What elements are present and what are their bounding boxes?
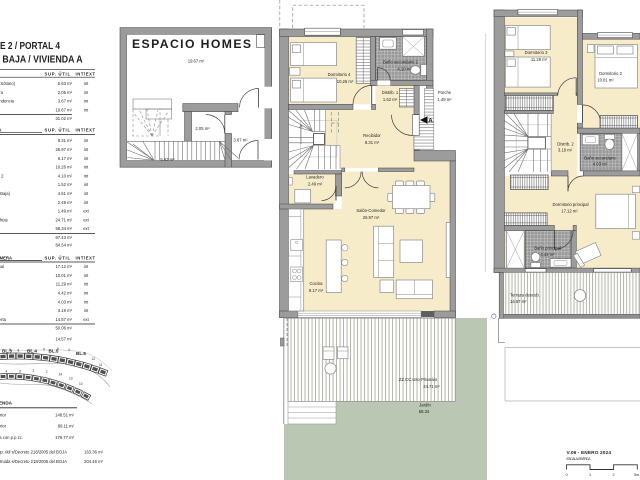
svg-text:3.19 m²: 3.19 m² xyxy=(558,148,573,153)
svg-text:Dormitorio 4: Dormitorio 4 xyxy=(328,72,351,77)
svg-text:Jardín en disfrute: Jardín en disfrute xyxy=(0,217,9,222)
svg-text:BL.4: BL.4 xyxy=(27,349,37,354)
svg-text:8.31 m²: 8.31 m² xyxy=(58,138,73,143)
svg-text:Distrib. 1: Distrib. 1 xyxy=(382,90,399,95)
svg-text:PLANTA PRIMERA: PLANTA PRIMERA xyxy=(0,255,12,260)
svg-text:Distrib. 2: Distrib. 2 xyxy=(557,142,574,147)
svg-text:Terraza descubierta: Terraza descubierta xyxy=(0,317,7,322)
svg-text:Baño secundario 2: Baño secundario 2 xyxy=(383,60,419,65)
svg-text:Jardín: Jardín xyxy=(419,403,431,408)
svg-text:148.51 m²: 148.51 m² xyxy=(55,413,74,418)
svg-text:24.71 m²: 24.71 m² xyxy=(55,217,72,222)
svg-text:1.49 m²: 1.49 m² xyxy=(437,97,452,102)
svg-text:163.36 m²: 163.36 m² xyxy=(84,449,103,454)
svg-text:PLANTA BAJA: PLANTA BAJA xyxy=(0,128,2,133)
svg-text:4: 4 xyxy=(6,370,8,374)
svg-text:A BAJA / VIVIENDA A: A BAJA / VIVIENDA A xyxy=(0,55,83,66)
svg-text:VIVIENDA: VIVIENDA xyxy=(0,401,13,406)
svg-text:4.10 m²: 4.10 m² xyxy=(397,67,412,72)
svg-text:Dormitorio 3: Dormitorio 3 xyxy=(525,50,548,55)
svg-text:58.34: 58.34 xyxy=(419,409,430,414)
svg-text:Dependencia: Dependencia xyxy=(0,99,15,104)
svg-text:4.42 m²: 4.42 m² xyxy=(540,252,555,257)
svg-text:3.67 m²: 3.67 m² xyxy=(233,138,248,143)
svg-text:Lavadero (P. Baja): Lavadero (P. Baja) xyxy=(0,191,11,196)
svg-text:19.67 m²: 19.67 m² xyxy=(55,107,72,112)
svg-text:17.12 m²: 17.12 m² xyxy=(55,264,72,269)
svg-text:4.03 m²: 4.03 m² xyxy=(58,299,73,304)
svg-text:Cocina: Cocina xyxy=(309,281,323,286)
svg-text:14.57 m²: 14.57 m² xyxy=(55,337,72,342)
svg-text:11.29 m²: 11.29 m² xyxy=(56,282,73,287)
svg-text:A: A xyxy=(428,118,433,125)
svg-text:14.57 m²: 14.57 m² xyxy=(55,317,72,322)
svg-text:8: 8 xyxy=(18,349,20,353)
svg-text:2.05 m²: 2.05 m² xyxy=(58,90,73,95)
svg-text:8.31 m²: 8.31 m² xyxy=(365,140,380,145)
svg-text:3: 3 xyxy=(19,370,21,374)
svg-text:ext: ext xyxy=(83,209,89,214)
svg-text:14.57 m²: 14.57 m² xyxy=(510,299,527,304)
svg-text:INT/EXT: INT/EXT xyxy=(76,71,96,76)
svg-text:Baño secundario: Baño secundario xyxy=(584,156,616,161)
svg-text:3m: 3m xyxy=(634,473,639,477)
svg-text:1: 1 xyxy=(589,473,591,477)
svg-text:INT/EXT: INT/EXT xyxy=(76,255,96,260)
svg-text:179.77 m²: 179.77 m² xyxy=(55,435,74,440)
svg-text:10.26 m²: 10.26 m² xyxy=(55,165,72,170)
svg-text:ext: ext xyxy=(83,226,89,231)
svg-text:9.17 m²: 9.17 m² xyxy=(58,156,73,161)
svg-text:ext: ext xyxy=(83,217,89,222)
svg-text:2: 2 xyxy=(613,473,615,477)
svg-text:67.43 m²: 67.43 m² xyxy=(55,235,72,240)
svg-text:5.63 m²: 5.63 m² xyxy=(160,157,175,162)
svg-text:2.49 m²: 2.49 m² xyxy=(308,182,323,187)
svg-text:ESCALA GRÁFICA: ESCALA GRÁFICA xyxy=(567,457,592,461)
svg-text:26.97 m²: 26.97 m² xyxy=(363,215,380,220)
svg-text:1.52 m²: 1.52 m² xyxy=(383,97,398,102)
svg-text:2.49 m²: 2.49 m² xyxy=(58,200,73,205)
svg-text:BL.6: BL.6 xyxy=(76,351,86,356)
svg-text:9.17 m²: 9.17 m² xyxy=(309,288,324,293)
svg-text:10: 10 xyxy=(79,382,83,386)
svg-text:19.67 m²: 19.67 m² xyxy=(188,59,205,64)
svg-text:SUP. ÚTIL: SUP. ÚTIL xyxy=(45,71,71,76)
svg-text:Porche: Porche xyxy=(438,90,452,95)
svg-text:4.03 m²: 4.03 m² xyxy=(593,162,608,167)
svg-text:13: 13 xyxy=(69,377,73,381)
svg-text:4.42 m²: 4.42 m² xyxy=(58,291,73,296)
svg-text:Dormitorio 2: Dormitorio 2 xyxy=(599,71,622,76)
svg-text:E 2 / PORTAL 4: E 2 / PORTAL 4 xyxy=(0,41,60,52)
svg-text:1.52 m²: 1.52 m² xyxy=(58,182,73,187)
svg-text:Lavadero: Lavadero xyxy=(306,175,324,180)
svg-text:2.05 m²: 2.05 m² xyxy=(195,126,210,131)
svg-text:4: 4 xyxy=(68,348,70,352)
svg-text:Sup. construida con p.p zc.: Sup. construida con p.p zc. xyxy=(0,435,23,440)
svg-text:Superficie exterior: Superficie exterior xyxy=(0,424,7,429)
svg-text:89.11 m²: 89.11 m² xyxy=(58,424,75,429)
svg-text:SUP. ÚTIL: SUP. ÚTIL xyxy=(45,128,71,133)
svg-text:204.46 m²: 204.46 m² xyxy=(84,459,103,464)
svg-text:31.02 m²: 31.02 m² xyxy=(55,116,72,121)
svg-text:V.06 - ENERO 2024: V.06 - ENERO 2024 xyxy=(567,450,612,456)
svg-text:1: 1 xyxy=(46,370,48,374)
svg-text:10.01 m²: 10.01 m² xyxy=(597,78,614,83)
svg-text:58.34 m²: 58.34 m² xyxy=(55,226,72,231)
svg-text:24.71 m²: 24.71 m² xyxy=(423,384,440,389)
svg-text:SUP. ÚTIL: SUP. ÚTIL xyxy=(45,255,71,260)
svg-text:10.26 m²: 10.26 m² xyxy=(337,79,354,84)
svg-text:7: 7 xyxy=(30,349,32,353)
svg-text:Sup. construida s/Decreto 218/: Sup. construida s/Decreto 218/2005 del B… xyxy=(0,459,67,464)
svg-text:5.63 m²: 5.63 m² xyxy=(58,81,73,86)
svg-text:5: 5 xyxy=(57,347,59,351)
svg-text:Dormitorio principal: Dormitorio principal xyxy=(552,202,588,207)
svg-text:12: 12 xyxy=(92,357,96,361)
svg-text:Salón-Comedor: Salón-Comedor xyxy=(356,208,386,213)
svg-text:0: 0 xyxy=(565,473,567,477)
svg-text:Distribuidor (Sótano): Distribuidor (Sótano) xyxy=(0,81,16,86)
svg-text:9: 9 xyxy=(9,348,11,352)
svg-text:ZZ.CC.Uso Privativo: ZZ.CC.Uso Privativo xyxy=(399,377,438,382)
svg-text:1.49 m²: 1.49 m² xyxy=(58,209,73,214)
svg-text:17.12 m²: 17.12 m² xyxy=(561,209,578,214)
svg-text:Terraza descub.: Terraza descub. xyxy=(510,293,540,298)
svg-text:6: 6 xyxy=(43,348,45,352)
svg-text:Recibidor: Recibidor xyxy=(363,133,381,138)
svg-text:10.01 m²: 10.01 m² xyxy=(55,273,72,278)
svg-text:BL.3: BL.3 xyxy=(2,349,12,354)
svg-text:2: 2 xyxy=(33,369,35,373)
svg-text:26.97 m²: 26.97 m² xyxy=(55,147,72,152)
svg-text:3.67 m²: 3.67 m² xyxy=(58,99,73,104)
svg-text:ext: ext xyxy=(83,317,89,322)
svg-text:4.61 m²: 4.61 m² xyxy=(58,191,73,196)
svg-text:11: 11 xyxy=(99,363,103,367)
svg-text:4.10 m²: 4.10 m² xyxy=(58,173,73,178)
svg-text:3.19 m²: 3.19 m² xyxy=(58,308,73,313)
svg-text:Dormitorio principal: Dormitorio principal xyxy=(0,264,4,269)
svg-text:Superficie interior: Superficie interior xyxy=(0,413,7,418)
svg-text:11.29 m²: 11.29 m² xyxy=(531,57,548,62)
svg-text:INT/EXT: INT/EXT xyxy=(76,128,96,133)
svg-text:84.54 m²: 84.54 m² xyxy=(55,243,72,248)
svg-text:Baño principal: Baño principal xyxy=(534,246,561,251)
svg-text:50.06 m²: 50.06 m² xyxy=(55,326,72,331)
svg-text:Sup. útil s/Decreto 218/2005 d: Sup. útil s/Decreto 218/2005 del BOJA xyxy=(0,449,67,454)
svg-text:14: 14 xyxy=(59,373,63,377)
